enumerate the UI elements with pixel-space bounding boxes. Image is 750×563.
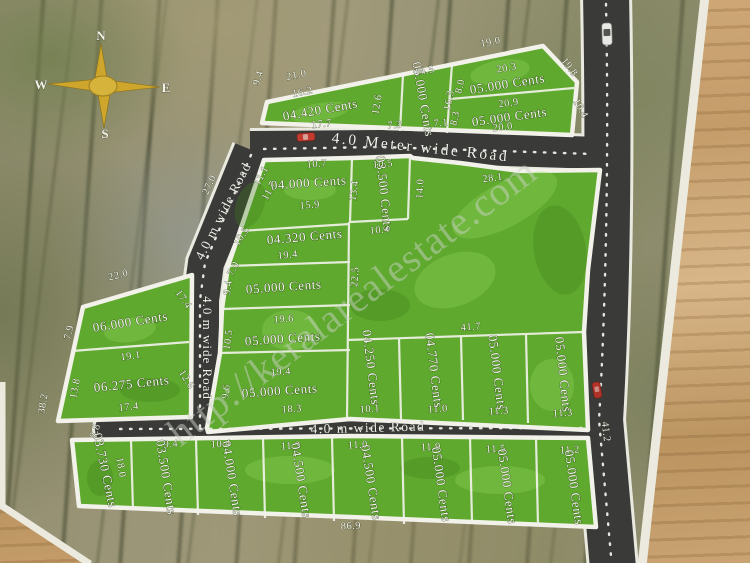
dimension-label: 22.0	[107, 268, 129, 284]
dimension-label: 9.4	[222, 279, 235, 295]
dimension-label: 19.0	[480, 35, 502, 49]
car-icon-white-right	[602, 23, 613, 45]
compass-south-label: S	[101, 126, 108, 141]
dimension-label: 21.0	[285, 68, 307, 83]
compass-east-label: E	[162, 80, 171, 95]
paper-right-edge	[642, 0, 705, 563]
compass-rose: N W E S	[35, 28, 171, 141]
dimension-label: 41.7	[460, 321, 481, 333]
bottom-road-label: 4.0 m wide Road	[310, 419, 425, 437]
dimension-label: 17.7	[311, 118, 332, 131]
dimension-label: 10.7	[306, 158, 327, 171]
car-icon-red-top	[297, 132, 316, 141]
dimension-label: 17.4	[118, 401, 140, 414]
dimension-label: 14.0	[414, 178, 426, 199]
dimension-label: 41.2	[599, 421, 612, 442]
compass-west-label: W	[35, 77, 48, 92]
dimension-label: 15.9	[299, 199, 320, 212]
compass-center	[89, 76, 117, 96]
dimension-label: 86.9	[340, 520, 361, 532]
compass-north-label: N	[96, 28, 106, 43]
plot-layout-photo: 4.0 Meter wide Road 4.0 m wide Road 4.0 …	[0, 0, 750, 563]
plot-map-svg: 4.0 Meter wide Road 4.0 m wide Road 4.0 …	[0, 0, 750, 563]
dimension-label: 9.4	[251, 69, 266, 87]
dimension-label: 38.2	[37, 393, 51, 415]
dimension-label: 19.4	[277, 249, 299, 262]
dimension-label: 18.3	[281, 403, 302, 415]
dimension-label: 7.3	[387, 119, 403, 131]
